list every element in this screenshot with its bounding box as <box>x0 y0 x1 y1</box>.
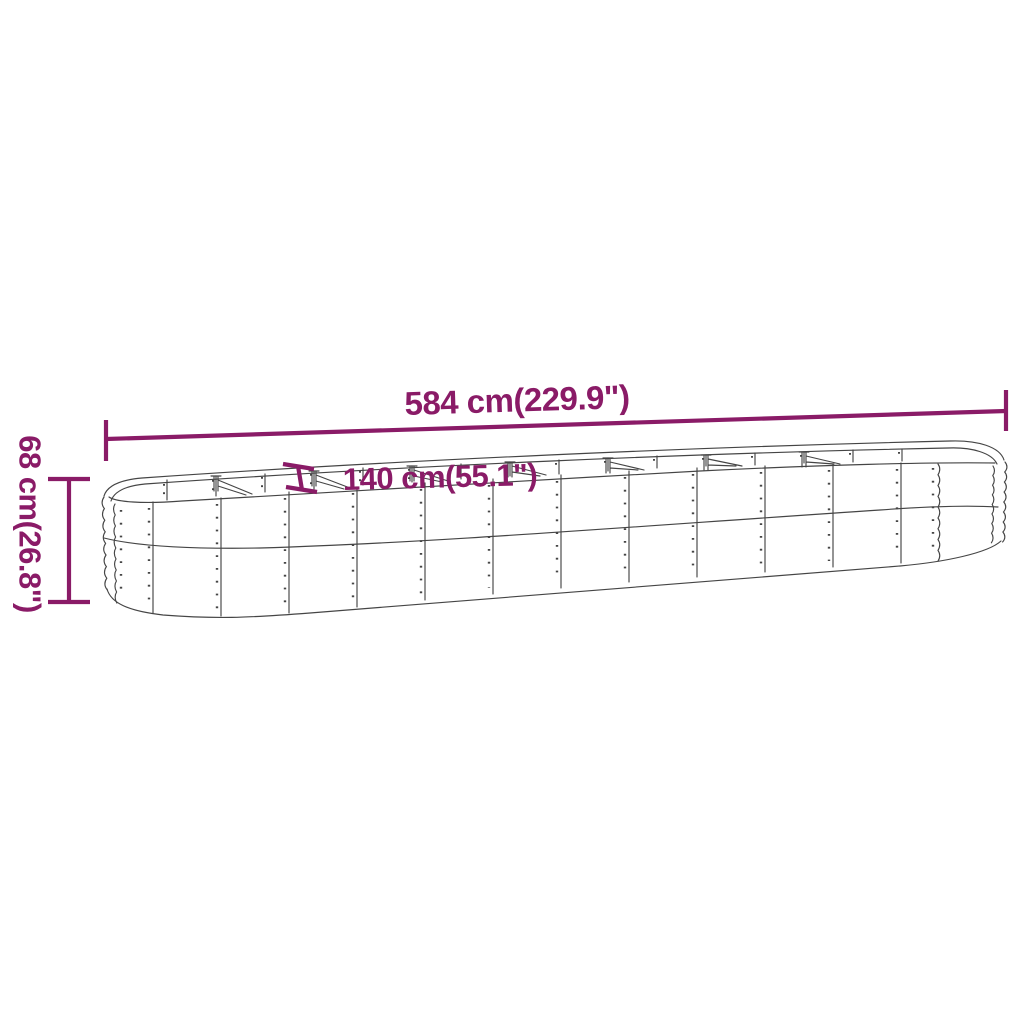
bed-left-cap-corrugation <box>102 497 107 590</box>
bed-bottom-edge <box>107 541 1001 617</box>
bed-rim-inner-edge <box>111 448 997 501</box>
bed-rim-outer-edge <box>104 441 1004 496</box>
bed-front-top-edge <box>109 463 995 503</box>
bed-left-cap-inner-corrugation <box>114 504 117 603</box>
diagram-canvas <box>0 0 1024 1024</box>
length-dimension-label: 584 cm(229.9") <box>404 380 630 420</box>
bed-right-cap-inner-corrugation <box>991 466 994 543</box>
product-dimension-diagram: 584 cm(229.9") 140 cm(55.1") 68 cm(26.8"… <box>0 0 1024 1024</box>
bed-right-cap-boundary-corrugation <box>938 464 940 561</box>
dimension-lines <box>48 390 1006 602</box>
bed-middle-seam <box>104 506 998 548</box>
height-dimension-label: 68 cm(26.8") <box>15 435 46 613</box>
bed-right-cap-corrugation <box>1003 462 1007 542</box>
width-dimension-label: 140 cm(55.1") <box>342 459 537 495</box>
width-dimension-cap-front <box>286 487 317 492</box>
raised-bed-drawing <box>102 441 1007 618</box>
width-dimension-rule <box>298 466 302 490</box>
height-dimension-line <box>48 479 90 602</box>
